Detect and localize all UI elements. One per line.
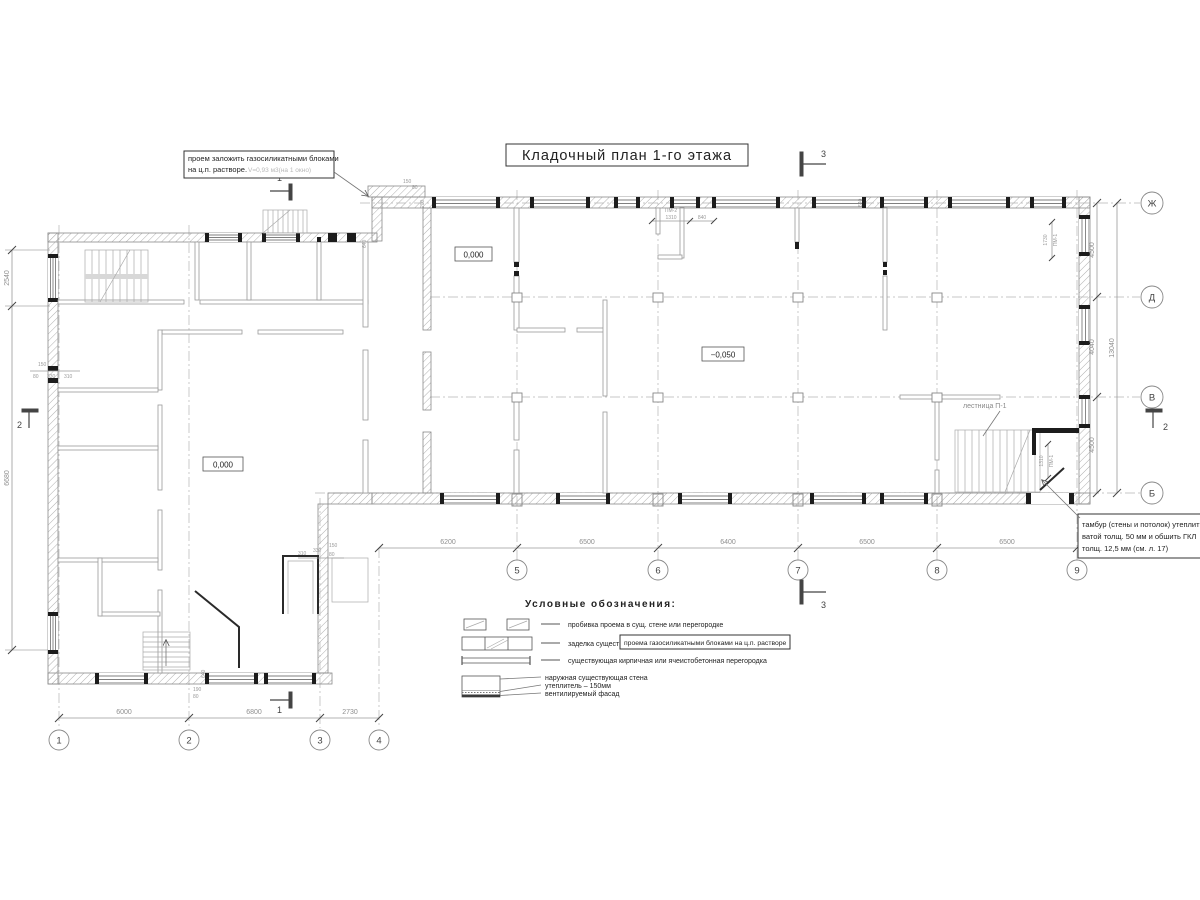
section-1-bottom: 1 <box>270 692 292 715</box>
svg-text:150: 150 <box>329 543 338 549</box>
svg-text:тамбур (стены и потолок) утепл: тамбур (стены и потолок) утеплить <box>1082 520 1200 529</box>
page-title: Кладочный план 1-го этажа <box>522 148 732 164</box>
svg-text:ПМ-2: ПМ-2 <box>665 208 677 214</box>
svg-text:3: 3 <box>821 600 826 610</box>
dimension-lines: 6000 6800 2730 6200 6500 6400 6500 6500 … <box>4 179 1121 722</box>
dim-6400: 6400 <box>720 539 736 546</box>
dim-6000: 6000 <box>116 709 132 716</box>
svg-text:330: 330 <box>47 374 56 380</box>
columns <box>512 293 942 506</box>
svg-text:пробивка проема в сущ. стене: пробивка проема в сущ. стене или перегор… <box>568 621 723 629</box>
svg-text:80: 80 <box>193 694 199 700</box>
svg-text:80: 80 <box>329 552 335 558</box>
legend-item-existing-partition: существующая кирпичная или ячеистобетонн… <box>462 656 767 665</box>
svg-text:1310: 1310 <box>1039 455 1045 466</box>
section-2-right: 2 <box>1146 409 1168 432</box>
dim-6800: 6800 <box>246 709 262 716</box>
pm1-top-dim: 1730 ПМ-1 <box>1043 219 1059 261</box>
svg-text:3: 3 <box>821 149 826 159</box>
axis-1: 1 <box>56 736 61 747</box>
opening-note-leader <box>334 172 368 196</box>
svg-text:150: 150 <box>38 362 47 368</box>
svg-text:1310: 1310 <box>665 215 676 221</box>
tambour-entrance-door <box>1026 493 1074 504</box>
axis-4: 4 <box>376 736 381 747</box>
dim-4040: 4040 <box>1089 339 1096 355</box>
svg-text:на ц.п. растворе.: на ц.п. растворе. <box>188 165 247 174</box>
small-dims: 150 80 330 310 640 190 80 150 80 200 640… <box>30 179 864 700</box>
svg-text:640: 640 <box>362 239 368 248</box>
svg-text:проем заложить газосиликатными: проем заложить газосиликатными блоками <box>188 154 339 163</box>
dim-6200: 6200 <box>440 539 456 546</box>
svg-text:80: 80 <box>33 374 39 380</box>
stair-p1 <box>955 428 1079 492</box>
section-2-left: 2 <box>17 409 38 430</box>
axis-5: 5 <box>514 566 519 577</box>
svg-text:310: 310 <box>64 374 73 380</box>
long-building-partitions <box>514 208 1000 493</box>
dim-4500a: 4500 <box>1089 242 1096 258</box>
legend-wall-detail: наружная существующая стена утеплитель –… <box>462 675 648 698</box>
dim-2730: 2730 <box>342 709 358 716</box>
dim-13040: 13040 <box>1109 338 1116 358</box>
svg-text:2: 2 <box>1163 422 1168 432</box>
axis-2: 2 <box>186 736 191 747</box>
legend-item-infill: заделка существ. проема газосиликатными … <box>462 635 790 650</box>
dim-4500b: 4500 <box>1089 437 1096 453</box>
dim-6500b: 6500 <box>859 539 875 546</box>
svg-text:1730: 1730 <box>1043 234 1049 245</box>
svg-text:190: 190 <box>193 687 202 693</box>
diagonal-wall <box>195 591 239 668</box>
svg-text:существующая кирпичная или яче: существующая кирпичная или ячеистобетонн… <box>568 657 767 665</box>
svg-text:1: 1 <box>277 705 282 715</box>
tambour-new-wall <box>1032 428 1079 433</box>
elevation-0000-main: 0,000 <box>463 251 484 260</box>
svg-text:640: 640 <box>858 198 864 207</box>
tambour-note: тамбур (стены и потолок) утеплить ватой … <box>1042 480 1200 558</box>
axis-7: 7 <box>795 566 800 577</box>
axis-6: 6 <box>655 566 660 577</box>
opening-note: проем заложить газосиликатными блоками н… <box>184 151 368 196</box>
axis-v: В <box>1149 393 1155 404</box>
svg-text:лестница П-1: лестница П-1 <box>963 403 1007 410</box>
legend-item-opening: пробивка проема в сущ. стене или перегор… <box>464 619 723 630</box>
svg-text:310: 310 <box>298 551 307 557</box>
legend-heading: Условные обозначения: <box>525 598 676 610</box>
svg-text:наружная существующая стена: наружная существующая стена <box>545 675 648 682</box>
svg-text:проема газосиликатными блоками: проема газосиликатными блоками на ц.п. р… <box>624 639 787 647</box>
svg-text:ПМ-1: ПМ-1 <box>1053 234 1059 246</box>
svg-text:330: 330 <box>313 548 322 554</box>
axis-9: 9 <box>1074 566 1079 577</box>
title-block: Кладочный план 1-го этажа <box>506 144 748 166</box>
axis-3: 3 <box>317 736 322 747</box>
dim-6500a: 6500 <box>579 539 595 546</box>
svg-text:80: 80 <box>412 185 418 191</box>
axis-d: Д <box>1149 293 1156 304</box>
dim-2540: 2540 <box>4 270 11 286</box>
section-3-top: 3 <box>800 149 826 176</box>
tambour-door-leaf <box>1040 468 1064 490</box>
left-top-windows <box>205 233 356 242</box>
elevation-0000-left: 0,000 <box>213 461 234 470</box>
elevation-marks: 0,000 0,000 −0,050 <box>203 247 744 471</box>
svg-text:640: 640 <box>201 669 207 678</box>
pm1-stair-dim: 1310 ПМ-1 <box>1039 441 1055 481</box>
svg-text:2: 2 <box>17 420 22 430</box>
axis-zh: Ж <box>1148 199 1157 210</box>
svg-text:V=0,93 м3(на 1 окно): V=0,93 м3(на 1 окно) <box>248 167 311 174</box>
svg-text:ПМ-1: ПМ-1 <box>1049 455 1055 467</box>
external-stair-top <box>263 210 307 233</box>
svg-text:вентилируемый фасад: вентилируемый фасад <box>545 690 619 698</box>
legend: Условные обозначения: пробивка проема в … <box>462 598 790 698</box>
svg-text:толщ. 12,5 мм (см. л. 17): толщ. 12,5 мм (см. л. 17) <box>1082 544 1169 553</box>
dim-6680: 6680 <box>4 470 11 486</box>
svg-text:200: 200 <box>420 199 426 208</box>
axis-8: 8 <box>934 566 939 577</box>
section-3-bottom: 3 <box>800 580 826 610</box>
svg-text:заделка существ.: заделка существ. <box>568 641 625 648</box>
svg-text:150: 150 <box>403 179 412 185</box>
elevation-minus-0050: −0,050 <box>711 351 736 360</box>
svg-text:840: 840 <box>698 215 707 221</box>
floor-plan-drawing: 6000 6800 2730 6200 6500 6400 6500 6500 … <box>0 0 1200 900</box>
svg-text:утеплитель – 150мм: утеплитель – 150мм <box>545 683 611 690</box>
svg-text:ватой толщ. 50 мм и обшить ГКЛ: ватой толщ. 50 мм и обшить ГКЛ <box>1082 532 1196 541</box>
long-building <box>368 186 1090 506</box>
stair-bottom <box>143 632 190 670</box>
dim-6500c: 6500 <box>999 539 1015 546</box>
left-building <box>48 210 377 684</box>
axis-b: Б <box>1149 489 1155 500</box>
stair-top-left <box>85 250 148 302</box>
